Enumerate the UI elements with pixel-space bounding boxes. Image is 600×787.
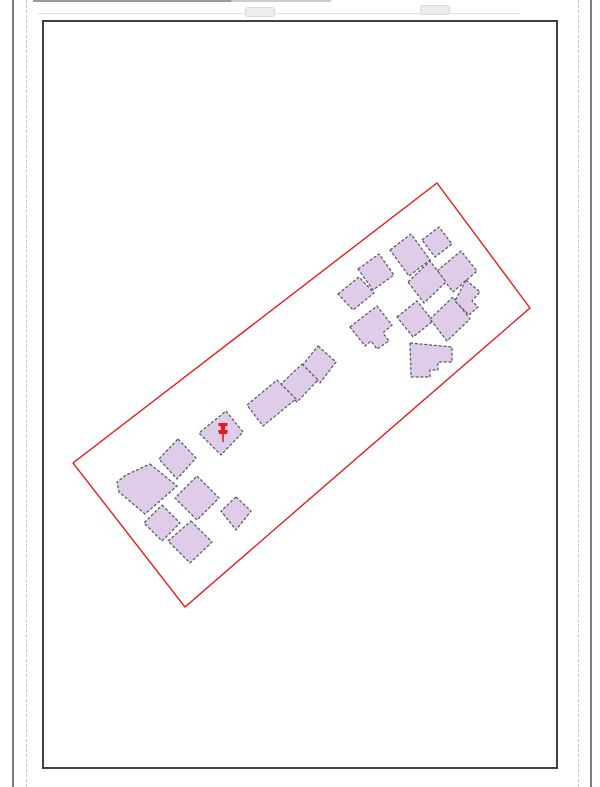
pin-waist <box>221 426 226 430</box>
building-polygon[interactable] <box>410 343 452 377</box>
building-polygon[interactable] <box>159 439 196 479</box>
building-polygon[interactable] <box>117 464 177 514</box>
building-polygon[interactable] <box>221 497 251 530</box>
pin-head-cap <box>219 423 228 426</box>
building-polygon[interactable] <box>350 306 392 349</box>
building-polygon[interactable] <box>397 301 433 337</box>
buildings-layer <box>117 227 480 563</box>
layout-canvas: { "window": { "width": 600, "height": 78… <box>0 0 600 787</box>
map-svg <box>0 0 600 787</box>
building-polygon[interactable] <box>422 227 452 257</box>
pin-flange <box>218 430 228 434</box>
building-polygon[interactable] <box>175 476 219 520</box>
